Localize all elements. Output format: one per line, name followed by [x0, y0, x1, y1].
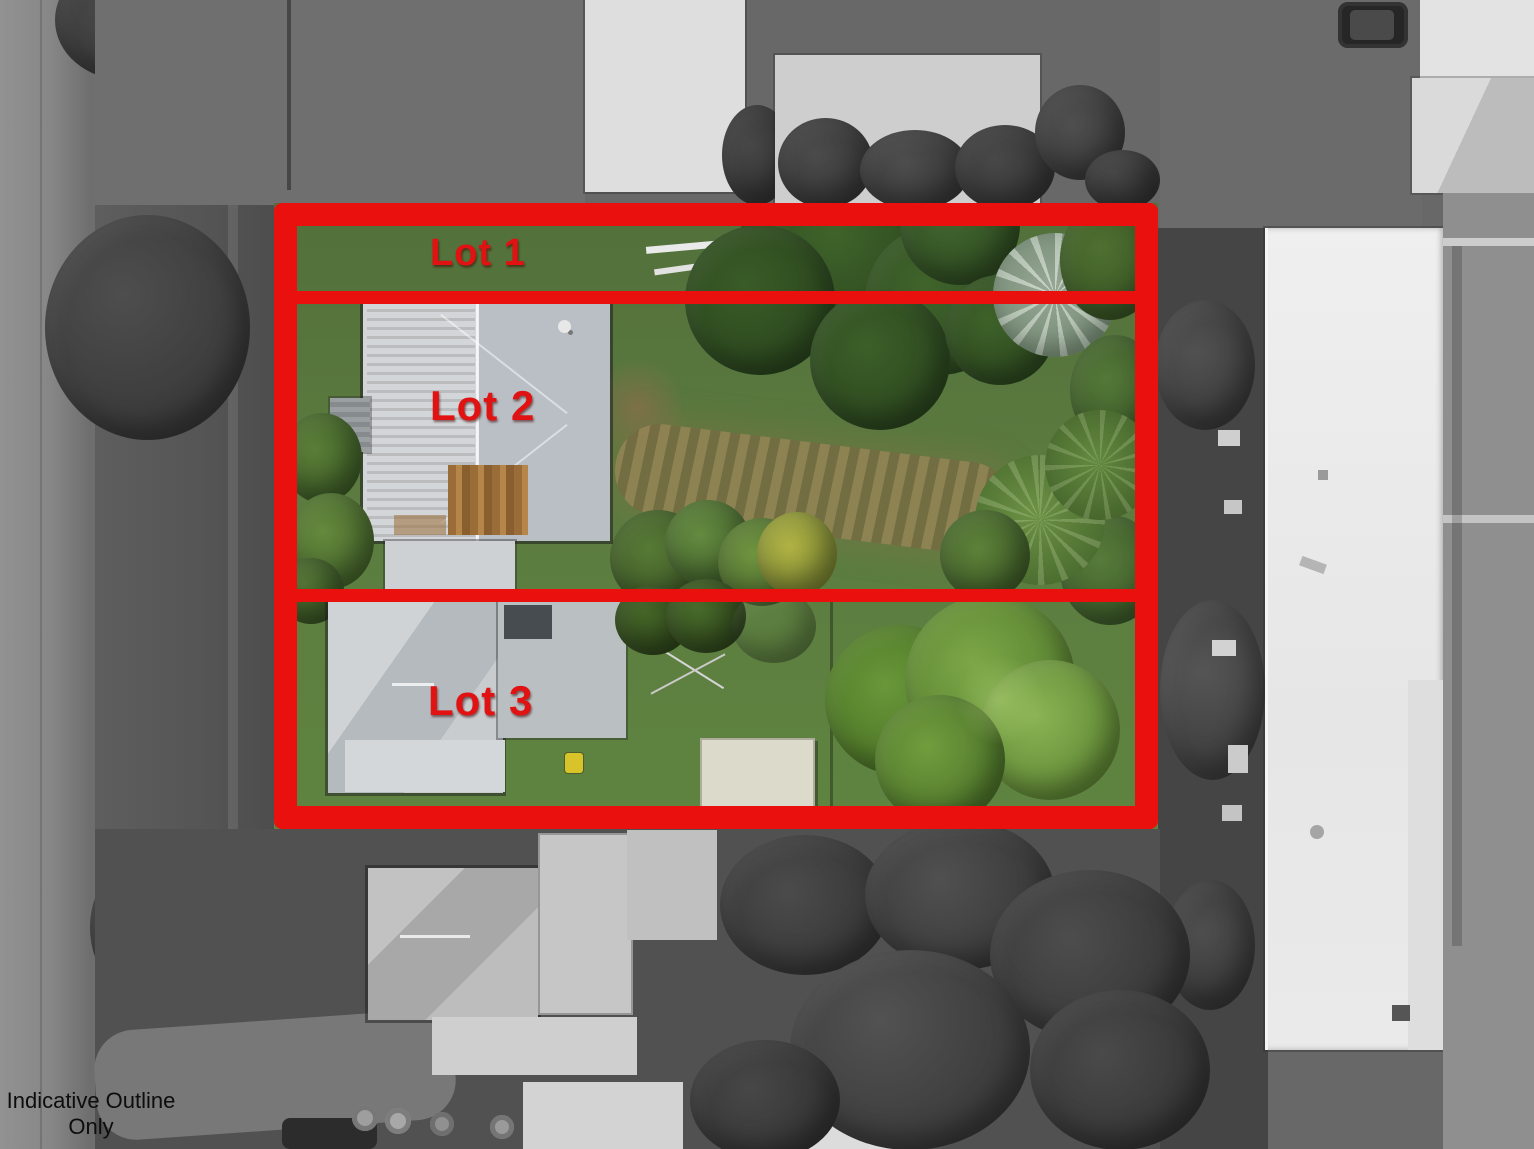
shed-roof-bottom	[627, 830, 717, 940]
trash-bin	[490, 1115, 514, 1139]
concrete-joint	[1443, 238, 1534, 246]
street-tree	[45, 215, 250, 440]
gray-tree-canopy	[860, 130, 970, 210]
trash-bin	[430, 1112, 454, 1136]
lot-divider-1	[280, 291, 1152, 304]
equipment-unit	[1212, 640, 1236, 656]
gray-palm	[1085, 150, 1160, 210]
gray-palm	[1155, 300, 1255, 430]
street-left-joint	[40, 0, 42, 1149]
shed-roof-top	[585, 0, 745, 192]
trash-bin	[352, 1105, 378, 1131]
lot-divider-2	[280, 589, 1152, 602]
large-gray-tree	[720, 835, 890, 975]
veranda-roof-bottom	[432, 1017, 637, 1075]
house-roof-hipped-bottom	[368, 868, 538, 1020]
gray-palm	[1160, 600, 1265, 780]
commercial-building-notch	[1408, 680, 1443, 1050]
equipment-unit	[1222, 805, 1242, 821]
disclaimer-text: Indicative Outline Only	[2, 1088, 180, 1140]
power-pole	[287, 0, 291, 190]
lot1-label: Lot 1	[430, 232, 526, 275]
disclaimer-line-2: Only	[2, 1114, 180, 1140]
gable-roof-top-right	[1412, 78, 1534, 193]
gray-tree-canopy	[778, 118, 873, 208]
roof-hatch	[1392, 1005, 1410, 1021]
equipment-unit	[1228, 745, 1248, 773]
roof-vent	[1310, 825, 1324, 839]
house-roof-bottom-edge	[523, 1082, 683, 1149]
equipment-unit	[1224, 500, 1242, 514]
car-roof	[1350, 10, 1394, 40]
large-gray-tree	[690, 1040, 840, 1149]
house-roof-section-bottom	[538, 833, 633, 1015]
large-gray-tree	[1030, 990, 1210, 1149]
equipment-unit	[1218, 430, 1240, 446]
trash-bin	[385, 1108, 411, 1134]
disclaimer-line-1: Indicative Outline	[2, 1088, 180, 1114]
roof-ridge	[400, 935, 470, 938]
gravel-yard-top	[95, 0, 585, 205]
roof-vent	[1318, 470, 1328, 480]
concrete-joint	[1452, 246, 1462, 946]
lot3-label: Lot 3	[428, 677, 533, 725]
street-left	[0, 0, 95, 1149]
aerial-photo: Lot 1 Lot 2 Lot 3 Indicative Outline Onl…	[0, 0, 1534, 1149]
building-top-right	[1420, 0, 1534, 78]
lot2-label: Lot 2	[430, 382, 535, 430]
